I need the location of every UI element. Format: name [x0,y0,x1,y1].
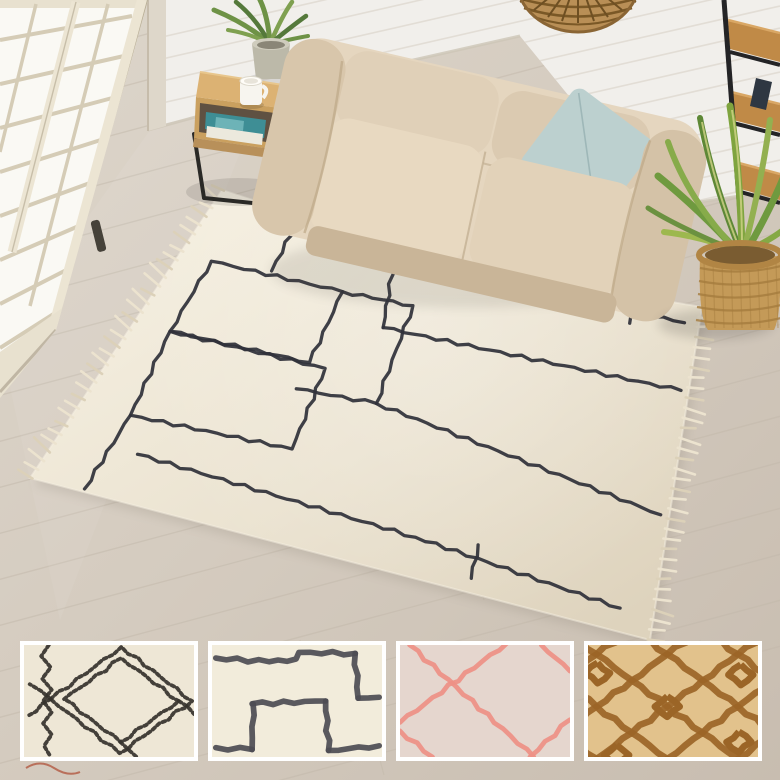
swatch-option-ivory-dotted-diamond[interactable] [20,641,198,761]
swatch-option-camel-moroccan-diamond[interactable] [584,641,762,761]
swatch-pattern-camel-moroccan-diamond [588,645,758,757]
swatch-pattern-ivory-block-lines [212,645,382,757]
swatch-pattern-ivory-dotted-diamond [24,645,194,757]
swatch-pattern-pink-thin-diamond [400,645,570,757]
room-photo [0,0,780,780]
swatch-option-ivory-block-lines[interactable] [208,641,386,761]
swatch-option-pink-thin-diamond[interactable] [396,641,574,761]
